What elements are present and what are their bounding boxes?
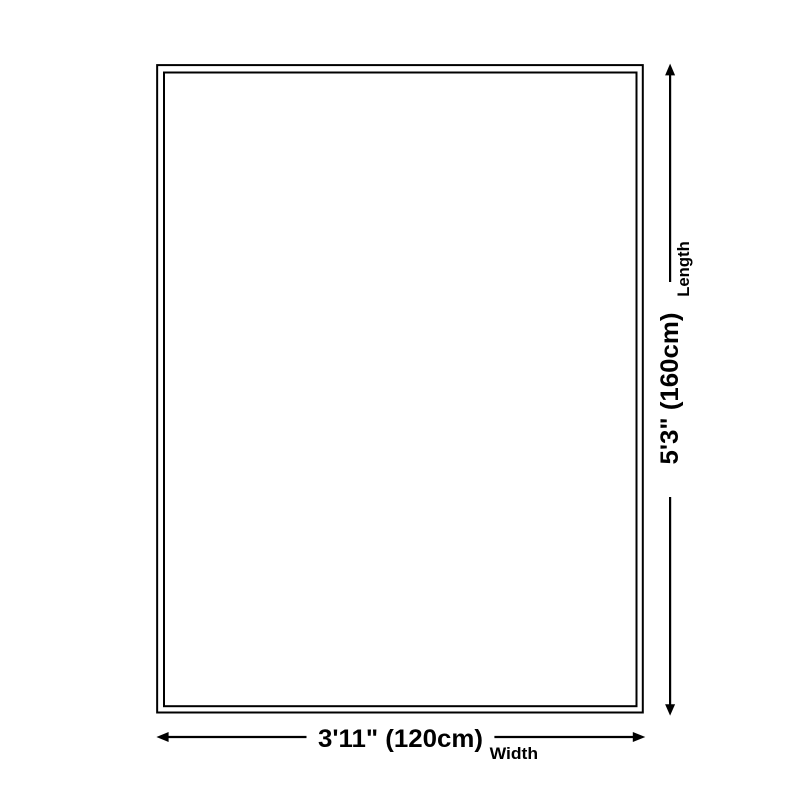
svg-text:5'3" (160cm): 5'3" (160cm) xyxy=(656,313,684,465)
svg-text:3'11" (120cm): 3'11" (120cm) xyxy=(318,725,483,753)
svg-text:Length: Length xyxy=(674,241,693,297)
svg-text:Width: Width xyxy=(490,744,538,763)
